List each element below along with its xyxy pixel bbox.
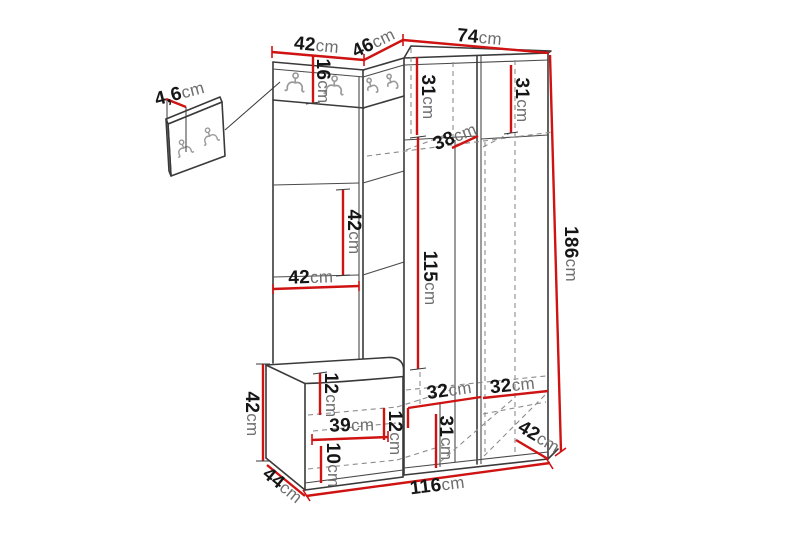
dim-wardrobe-depth: 42cm — [514, 417, 563, 458]
dim-lower-compartment-height: 31cm — [435, 416, 456, 461]
dim-wing-section-height: 42cm — [343, 210, 364, 255]
dim-wardrobe-width: 74cm — [456, 25, 503, 50]
dim-bench-shelf-width: 39cm — [329, 414, 375, 437]
dim-upper-right-height: 31cm — [511, 78, 532, 123]
dim-total-width: 116cm — [409, 472, 466, 500]
dim-hook-band-height: 16cm — [312, 59, 333, 104]
dimension-labels: 4,6cm 42cm 46cm 74cm 16cm 31cm 31cm 38cm… — [152, 24, 581, 508]
dim-bench-upper-compartment: 12cm — [384, 411, 405, 456]
dim-wing-inner-width: 42cm — [288, 266, 334, 289]
furniture-dimension-diagram: 4,6cm 42cm 46cm 74cm 16cm 31cm 31cm 38cm… — [0, 0, 800, 533]
dim-total-height: 186cm — [560, 226, 581, 282]
dim-bench-lower-compartment: 10cm — [322, 443, 343, 488]
dim-left-wing-width: 42cm — [293, 33, 340, 58]
dim-corner-width: 46cm — [349, 24, 399, 63]
dim-lower-right-width: 32cm — [489, 373, 536, 399]
single-hook-icon — [385, 73, 398, 91]
dim-upper-left-height: 31cm — [417, 75, 438, 120]
dim-bench-top-thickness: 12cm — [320, 373, 341, 418]
diagram-canvas: 4,6cm 42cm 46cm 74cm 16cm 31cm 31cm 38cm… — [0, 0, 800, 533]
double-hook-icon — [285, 72, 305, 91]
dim-hanging-height: 115cm — [419, 251, 440, 306]
dim-bench-height: 42cm — [241, 392, 262, 437]
single-hook-icon — [365, 77, 378, 95]
detail-connector-line — [225, 82, 280, 130]
